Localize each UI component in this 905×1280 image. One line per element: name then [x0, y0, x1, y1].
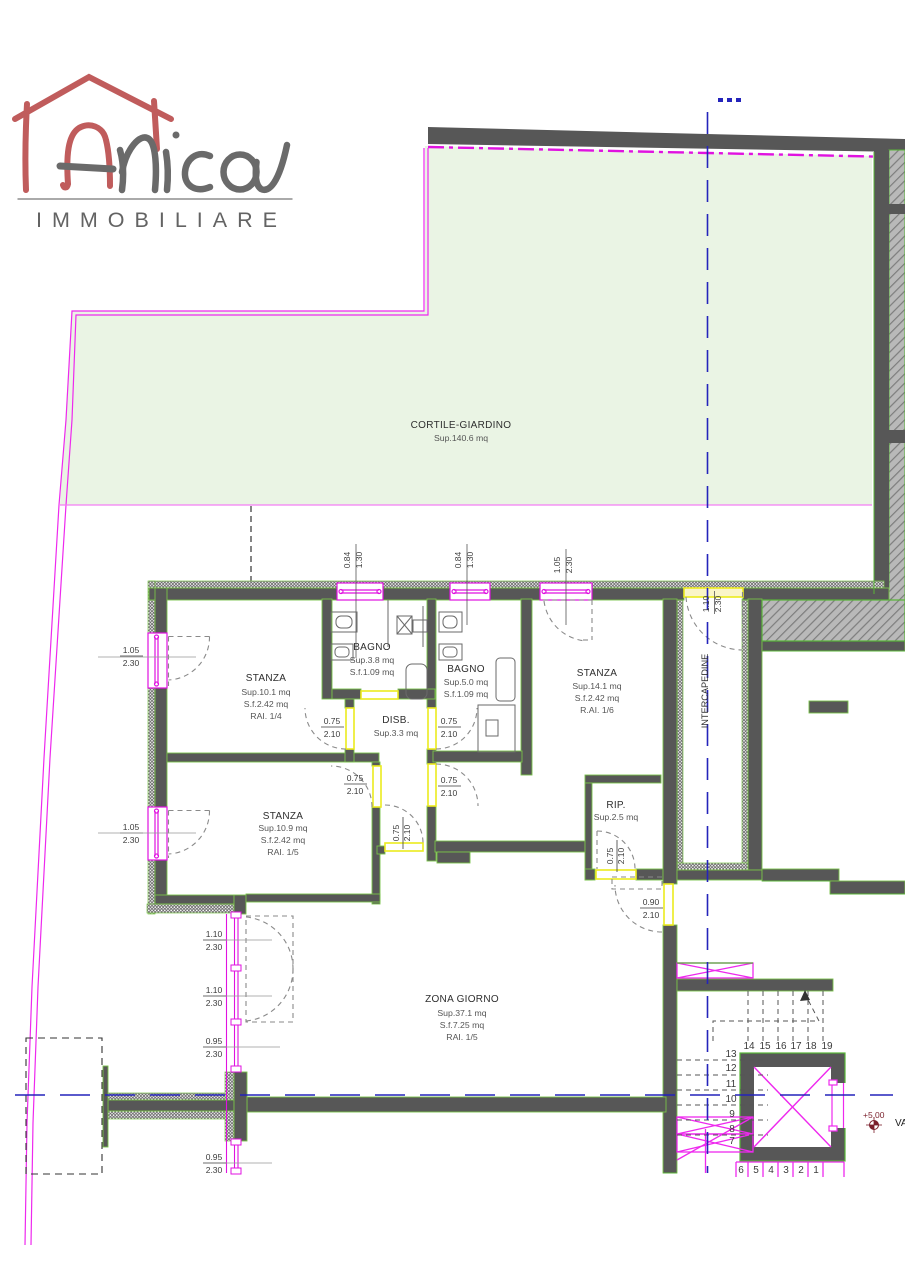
svg-text:Sup.2.5 mq: Sup.2.5 mq	[594, 812, 639, 822]
svg-text:0.84: 0.84	[342, 551, 352, 568]
svg-text:STANZA: STANZA	[577, 668, 618, 679]
svg-text:15: 15	[759, 1041, 771, 1052]
svg-text:STANZA: STANZA	[246, 673, 287, 684]
svg-text:VA: VA	[895, 1118, 905, 1129]
svg-text:0.75: 0.75	[441, 775, 458, 785]
svg-text:IMMOBILIARE: IMMOBILIARE	[36, 208, 287, 232]
svg-text:8: 8	[729, 1124, 735, 1135]
svg-text:Sup.3.3 mq: Sup.3.3 mq	[374, 728, 419, 738]
svg-text:2.30: 2.30	[123, 835, 140, 845]
svg-text:RIP.: RIP.	[606, 800, 625, 811]
svg-text:13: 13	[725, 1049, 737, 1060]
svg-text:CORTILE-GIARDINO: CORTILE-GIARDINO	[411, 420, 512, 431]
svg-text:S.f.1.09 mq: S.f.1.09 mq	[444, 689, 489, 699]
svg-text:5: 5	[753, 1165, 759, 1176]
svg-text:11: 11	[726, 1079, 737, 1090]
svg-text:2.30: 2.30	[206, 942, 223, 952]
svg-text:Sup.10.1 mq: Sup.10.1 mq	[241, 687, 290, 697]
svg-text:0.95: 0.95	[206, 1036, 223, 1046]
svg-text:2.10: 2.10	[441, 729, 458, 739]
svg-text:2.30: 2.30	[206, 1049, 223, 1059]
svg-text:0.75: 0.75	[441, 716, 458, 726]
svg-text:S.f.2.42 mq: S.f.2.42 mq	[261, 835, 306, 845]
svg-text:2.10: 2.10	[441, 788, 458, 798]
svg-text:STANZA: STANZA	[263, 811, 304, 822]
svg-text:S.f.7.25 mq: S.f.7.25 mq	[440, 1020, 485, 1030]
svg-text:0.75: 0.75	[347, 773, 364, 783]
svg-text:7: 7	[729, 1136, 735, 1147]
svg-text:R.AI. 1/6: R.AI. 1/6	[580, 705, 614, 715]
svg-text:19: 19	[821, 1041, 833, 1052]
svg-text:Sup.140.6 mq: Sup.140.6 mq	[434, 433, 488, 443]
svg-text:0.84: 0.84	[453, 551, 463, 568]
svg-text:0.75: 0.75	[391, 824, 401, 841]
svg-text:1.05: 1.05	[123, 645, 140, 655]
svg-text:1.30: 1.30	[354, 551, 364, 568]
svg-text:0.75: 0.75	[605, 847, 615, 864]
svg-text:1.10: 1.10	[206, 985, 223, 995]
svg-text:1.30: 1.30	[465, 551, 475, 568]
svg-text:ZONA GIORNO: ZONA GIORNO	[425, 994, 499, 1005]
svg-text:Sup.10.9 mq: Sup.10.9 mq	[258, 823, 307, 833]
svg-text:S.f.2.42 mq: S.f.2.42 mq	[575, 693, 620, 703]
svg-text:2.10: 2.10	[616, 847, 626, 864]
svg-text:Sup.14.1 mq: Sup.14.1 mq	[572, 681, 621, 691]
svg-text:2.10: 2.10	[324, 729, 341, 739]
svg-text:0.90: 0.90	[643, 897, 660, 907]
svg-text:4: 4	[768, 1165, 774, 1176]
svg-text:Sup.5.0 mq: Sup.5.0 mq	[444, 677, 489, 687]
svg-text:S.f.2.42 mq: S.f.2.42 mq	[244, 699, 289, 709]
svg-text:2: 2	[798, 1165, 804, 1176]
svg-text:12: 12	[725, 1063, 737, 1074]
svg-text:18: 18	[805, 1041, 817, 1052]
svg-text:RAI. 1/5: RAI. 1/5	[446, 1032, 478, 1042]
svg-text:2.10: 2.10	[643, 910, 660, 920]
svg-text:BAGNO: BAGNO	[447, 664, 485, 675]
svg-text:2.10: 2.10	[347, 786, 364, 796]
svg-text:BAGNO: BAGNO	[353, 642, 391, 653]
svg-text:0.75: 0.75	[324, 716, 341, 726]
svg-text:Sup.3.8 mq: Sup.3.8 mq	[350, 655, 395, 665]
svg-text:DISB.: DISB.	[382, 715, 410, 726]
svg-text:S.f.1.09 mq: S.f.1.09 mq	[350, 667, 395, 677]
svg-text:9: 9	[729, 1109, 735, 1120]
svg-text:1.05: 1.05	[123, 822, 140, 832]
svg-text:2.30: 2.30	[123, 658, 140, 668]
svg-text:0.95: 0.95	[206, 1152, 223, 1162]
svg-text:2.30: 2.30	[206, 1165, 223, 1175]
svg-text:INTERCAPEDINE: INTERCAPEDINE	[700, 654, 710, 729]
svg-text:Sup.37.1 mq: Sup.37.1 mq	[437, 1008, 486, 1018]
svg-text:2.30: 2.30	[564, 556, 574, 573]
svg-text:1: 1	[813, 1165, 819, 1176]
svg-text:2.30: 2.30	[206, 998, 223, 1008]
svg-text:1.05: 1.05	[552, 556, 562, 573]
svg-text:16: 16	[775, 1041, 787, 1052]
svg-text:6: 6	[738, 1165, 744, 1176]
svg-text:1.10: 1.10	[206, 929, 223, 939]
svg-text:RAI. 1/5: RAI. 1/5	[267, 847, 299, 857]
svg-text:14: 14	[743, 1041, 755, 1052]
svg-text:17: 17	[790, 1041, 802, 1052]
svg-text:3: 3	[783, 1165, 789, 1176]
svg-text:RAI. 1/4: RAI. 1/4	[250, 711, 282, 721]
svg-text:2.10: 2.10	[402, 824, 412, 841]
svg-text:1.10: 1.10	[701, 595, 711, 612]
